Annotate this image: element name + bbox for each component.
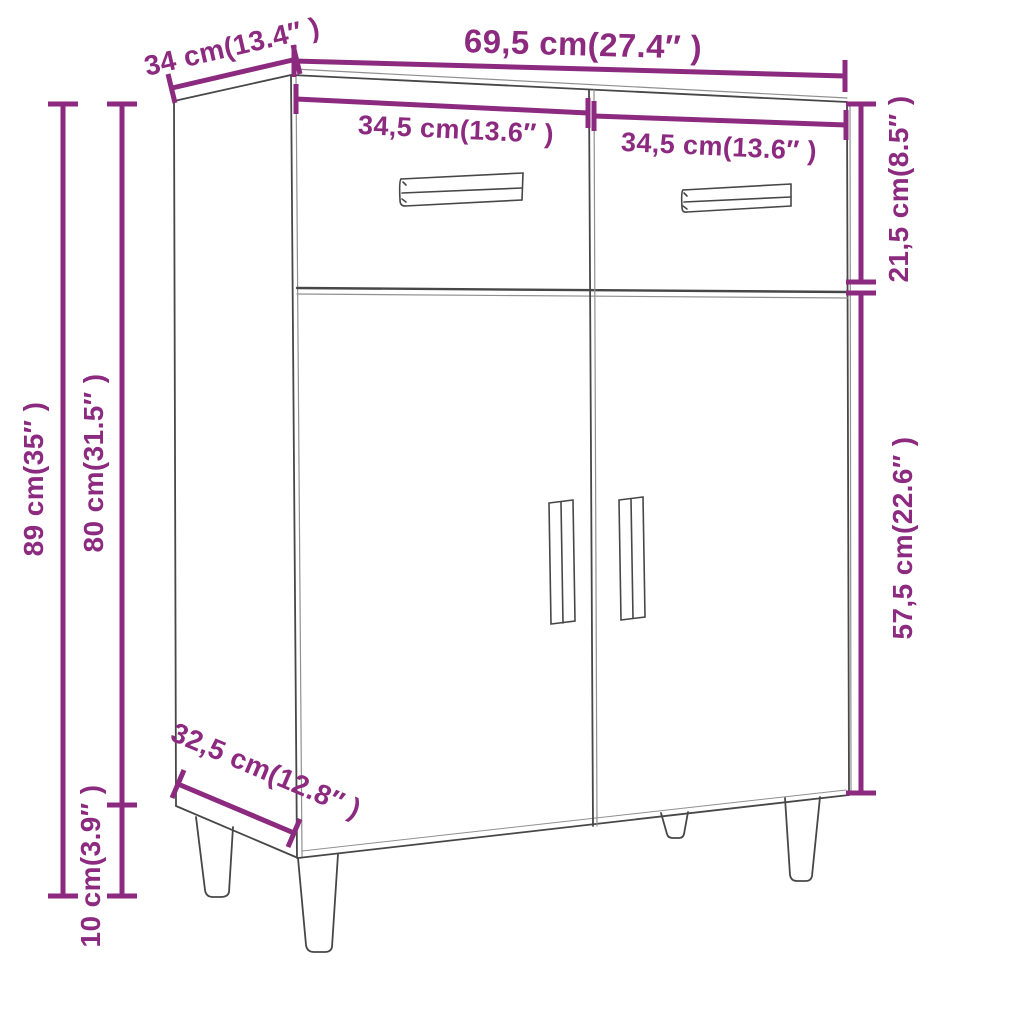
cabinet-drawing xyxy=(174,69,851,952)
left-door-handle xyxy=(549,500,575,624)
dim-line-total-height xyxy=(48,104,78,896)
dim-label-total-width: 69,5 cm(27.4″ ) xyxy=(463,24,702,64)
cabinet-front-left-edge xyxy=(291,75,302,858)
front-right-leg xyxy=(785,797,820,881)
diagram-canvas xyxy=(0,0,1024,1024)
dim-line-leg-height xyxy=(107,805,137,896)
dimension-lines xyxy=(48,45,876,896)
dim-label-door-section-height: 57,5 cm(22.6″ ) xyxy=(889,436,917,639)
dim-label-leg-height: 10 cm(3.9″ ) xyxy=(77,785,105,948)
back-left-leg xyxy=(196,817,233,897)
product-dimension-image: 69,5 cm(27.4″ ) 34 cm(13.4″ ) 34,5 cm(13… xyxy=(0,0,1024,1024)
right-drawer-handle xyxy=(682,184,791,212)
cabinet-drawer-door-separator xyxy=(297,288,848,298)
cabinet-right-edge xyxy=(847,102,851,795)
left-drawer-handle xyxy=(400,173,523,206)
front-left-leg xyxy=(298,854,338,952)
cabinet-center-divider xyxy=(589,90,597,826)
dim-label-drawer-section-height: 21,5 cm(8.5″ ) xyxy=(885,95,913,282)
right-door-handle xyxy=(619,497,645,620)
dim-line-body-height xyxy=(107,104,137,805)
dim-label-total-height: 89 cm(35″ ) xyxy=(20,402,48,557)
dim-label-body-height: 80 cm(31.5″ ) xyxy=(80,374,108,553)
cabinet-legs xyxy=(196,797,820,952)
cabinet-bottom-edge xyxy=(298,790,849,858)
